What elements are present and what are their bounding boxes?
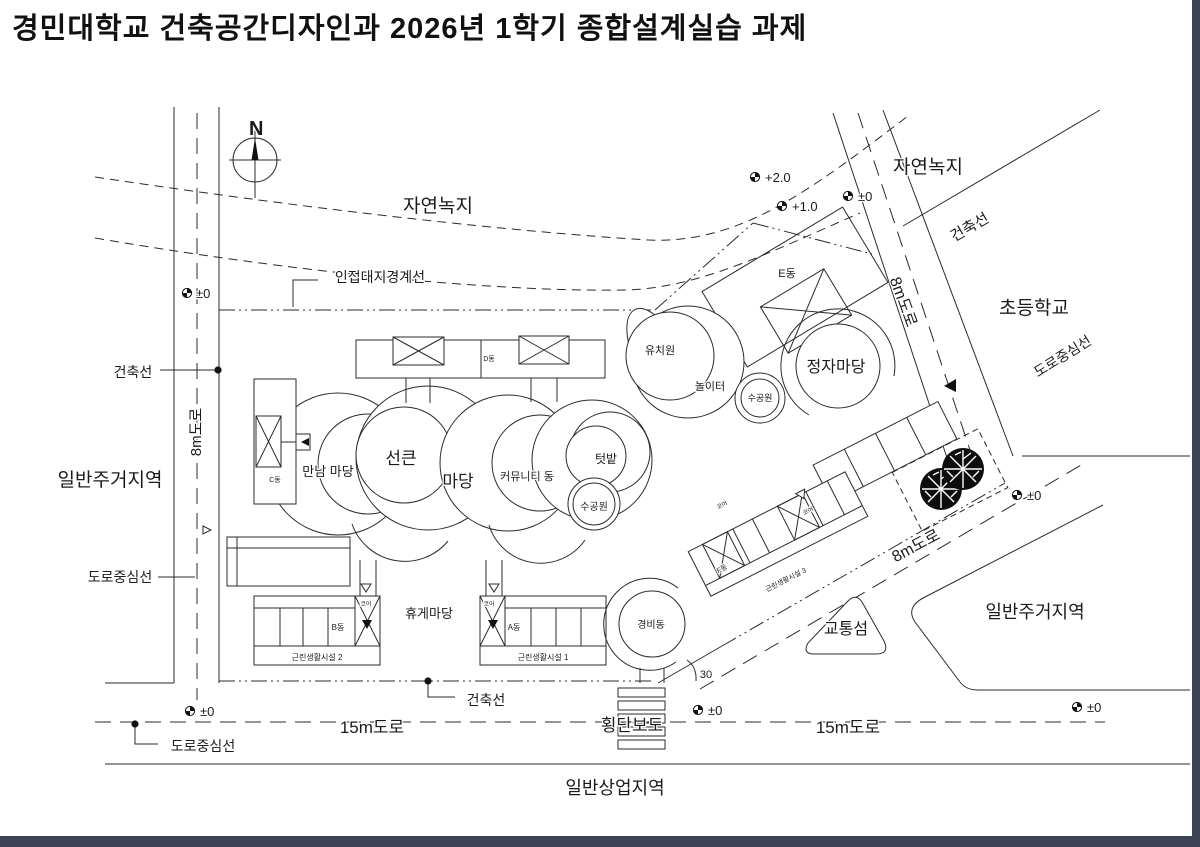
label-water-garden-upper: 수공원 [748, 393, 773, 403]
label-commercial-bottom: 일반상업지역 [565, 778, 664, 798]
label-core-b: 코어 [360, 600, 371, 608]
label-nf3: 근린생활시설 3 [764, 565, 808, 593]
benchmark-icon [750, 172, 759, 181]
label-core-f1: 코어 [715, 499, 728, 511]
label-road8m-left: 8m도로 [188, 408, 205, 457]
level-zero-bottom-right: ±0 [1087, 700, 1101, 715]
corridors [360, 560, 502, 596]
label-kindergarten: 유치원 [645, 344, 675, 357]
level-zero-left: ±0 [196, 286, 210, 301]
core-box [256, 416, 281, 467]
label-madang: 마당 [442, 472, 474, 491]
sheet-title: 경민대학교 건축공간디자인과 2026년 1학기 종합설계실습 과제 [12, 12, 807, 45]
compass-n-label: N [249, 118, 263, 140]
plaza-deck [227, 537, 350, 586]
label-building-b: B동 [332, 623, 345, 632]
label-road-center-right: 도로중심선 [1031, 332, 1094, 380]
benchmark-icon [182, 288, 191, 297]
label-building-d: D동 [483, 355, 495, 363]
north-compass-icon: N [229, 118, 281, 198]
label-road15m-right: 15m도로 [816, 718, 880, 737]
level-plus20: +2.0 [765, 170, 791, 185]
label-rest-yard: 휴게마당 [405, 606, 453, 621]
adjacent-boundary-leader [293, 280, 318, 307]
label-road-center-bottom: 도로중심선 [171, 738, 235, 754]
label-playground: 놀이터 [695, 380, 725, 393]
label-garden: 텃밭 [595, 452, 617, 466]
residential-right-parcel-edge [912, 505, 1190, 690]
label-residential-right: 일반주거지역 [985, 602, 1084, 622]
level-zero-right: ±0 [1027, 488, 1041, 503]
label-building-c: C동 [269, 476, 281, 484]
label-building-a: A동 [508, 623, 521, 632]
benchmark-icon [777, 201, 786, 210]
label-core-a: 코어 [483, 600, 494, 608]
label-angle-30: 30 [700, 669, 712, 681]
label-crosswalk: 횡단보도 [601, 716, 664, 735]
label-adjacent-boundary: 인접대지경계선 [335, 269, 425, 285]
label-road8m-se: 8m도로 [889, 527, 943, 566]
level-zero-bottom-mid: ±0 [708, 703, 722, 718]
benchmark-icon [843, 191, 852, 200]
label-building-e: E동 [778, 268, 795, 280]
benchmark-icon [693, 705, 702, 714]
label-building-line-bottom: 건축선 [467, 692, 506, 708]
label-natural-green-right: 자연녹지 [893, 156, 963, 178]
label-meeting-yard: 만남 마당 [302, 464, 353, 479]
site-boundary [219, 223, 872, 310]
road-8m-left [174, 107, 219, 700]
label-building-line-ne: 건축선 [948, 210, 992, 245]
label-natural-green-top: 자연녹지 [403, 195, 473, 217]
benchmark-icon [185, 706, 194, 715]
centerline-arrow [944, 379, 956, 392]
road-8m-ne [833, 110, 1190, 470]
tree-icon [942, 448, 984, 490]
label-road-center-left: 도로중심선 [88, 569, 152, 585]
entry-triangle-b [361, 584, 371, 592]
site-plan-drawing: 경민대학교 건축공간디자인과 2026년 1학기 종합설계실습 과제 N [0, 0, 1200, 847]
benchmark-icon [1072, 702, 1081, 711]
label-building-line-left: 건축선 [114, 364, 153, 380]
core-box [519, 336, 569, 364]
building-f-block [688, 402, 957, 597]
level-zero-bottom-left: ±0 [200, 704, 214, 719]
playground-crescent [626, 306, 744, 418]
label-community: 커뮤니티 동 [500, 470, 554, 483]
label-pavilion-yard: 정자마당 [807, 358, 866, 376]
label-water-garden-lower: 수공원 [580, 501, 608, 513]
label-residential-left: 일반주거지역 [58, 469, 163, 491]
label-security: 경비동 [637, 618, 665, 631]
label-road15m-left: 15m도로 [340, 718, 404, 737]
entry-triangle-a [489, 584, 499, 592]
label-sunken: 선큰 [385, 449, 416, 468]
level-zero-ne: ±0 [858, 189, 872, 204]
core-box [393, 337, 444, 365]
level-plus10: +1.0 [792, 199, 818, 214]
label-traffic-island: 교통섬 [824, 620, 868, 638]
label-elementary-school: 초등학교 [999, 297, 1069, 319]
building-d [356, 336, 605, 403]
site-plan-sheet: 경민대학교 건축공간디자인과 2026년 1학기 종합설계실습 과제 N [0, 0, 1200, 847]
frame-edge-bottom [0, 836, 1200, 847]
frame-edge-right [1192, 0, 1200, 847]
label-nf1: 근린생활시설 1 [518, 652, 569, 662]
benchmark-icon [1012, 490, 1021, 499]
label-nf2: 근린생활시설 2 [292, 652, 343, 662]
entry-arrow-left [203, 526, 211, 534]
